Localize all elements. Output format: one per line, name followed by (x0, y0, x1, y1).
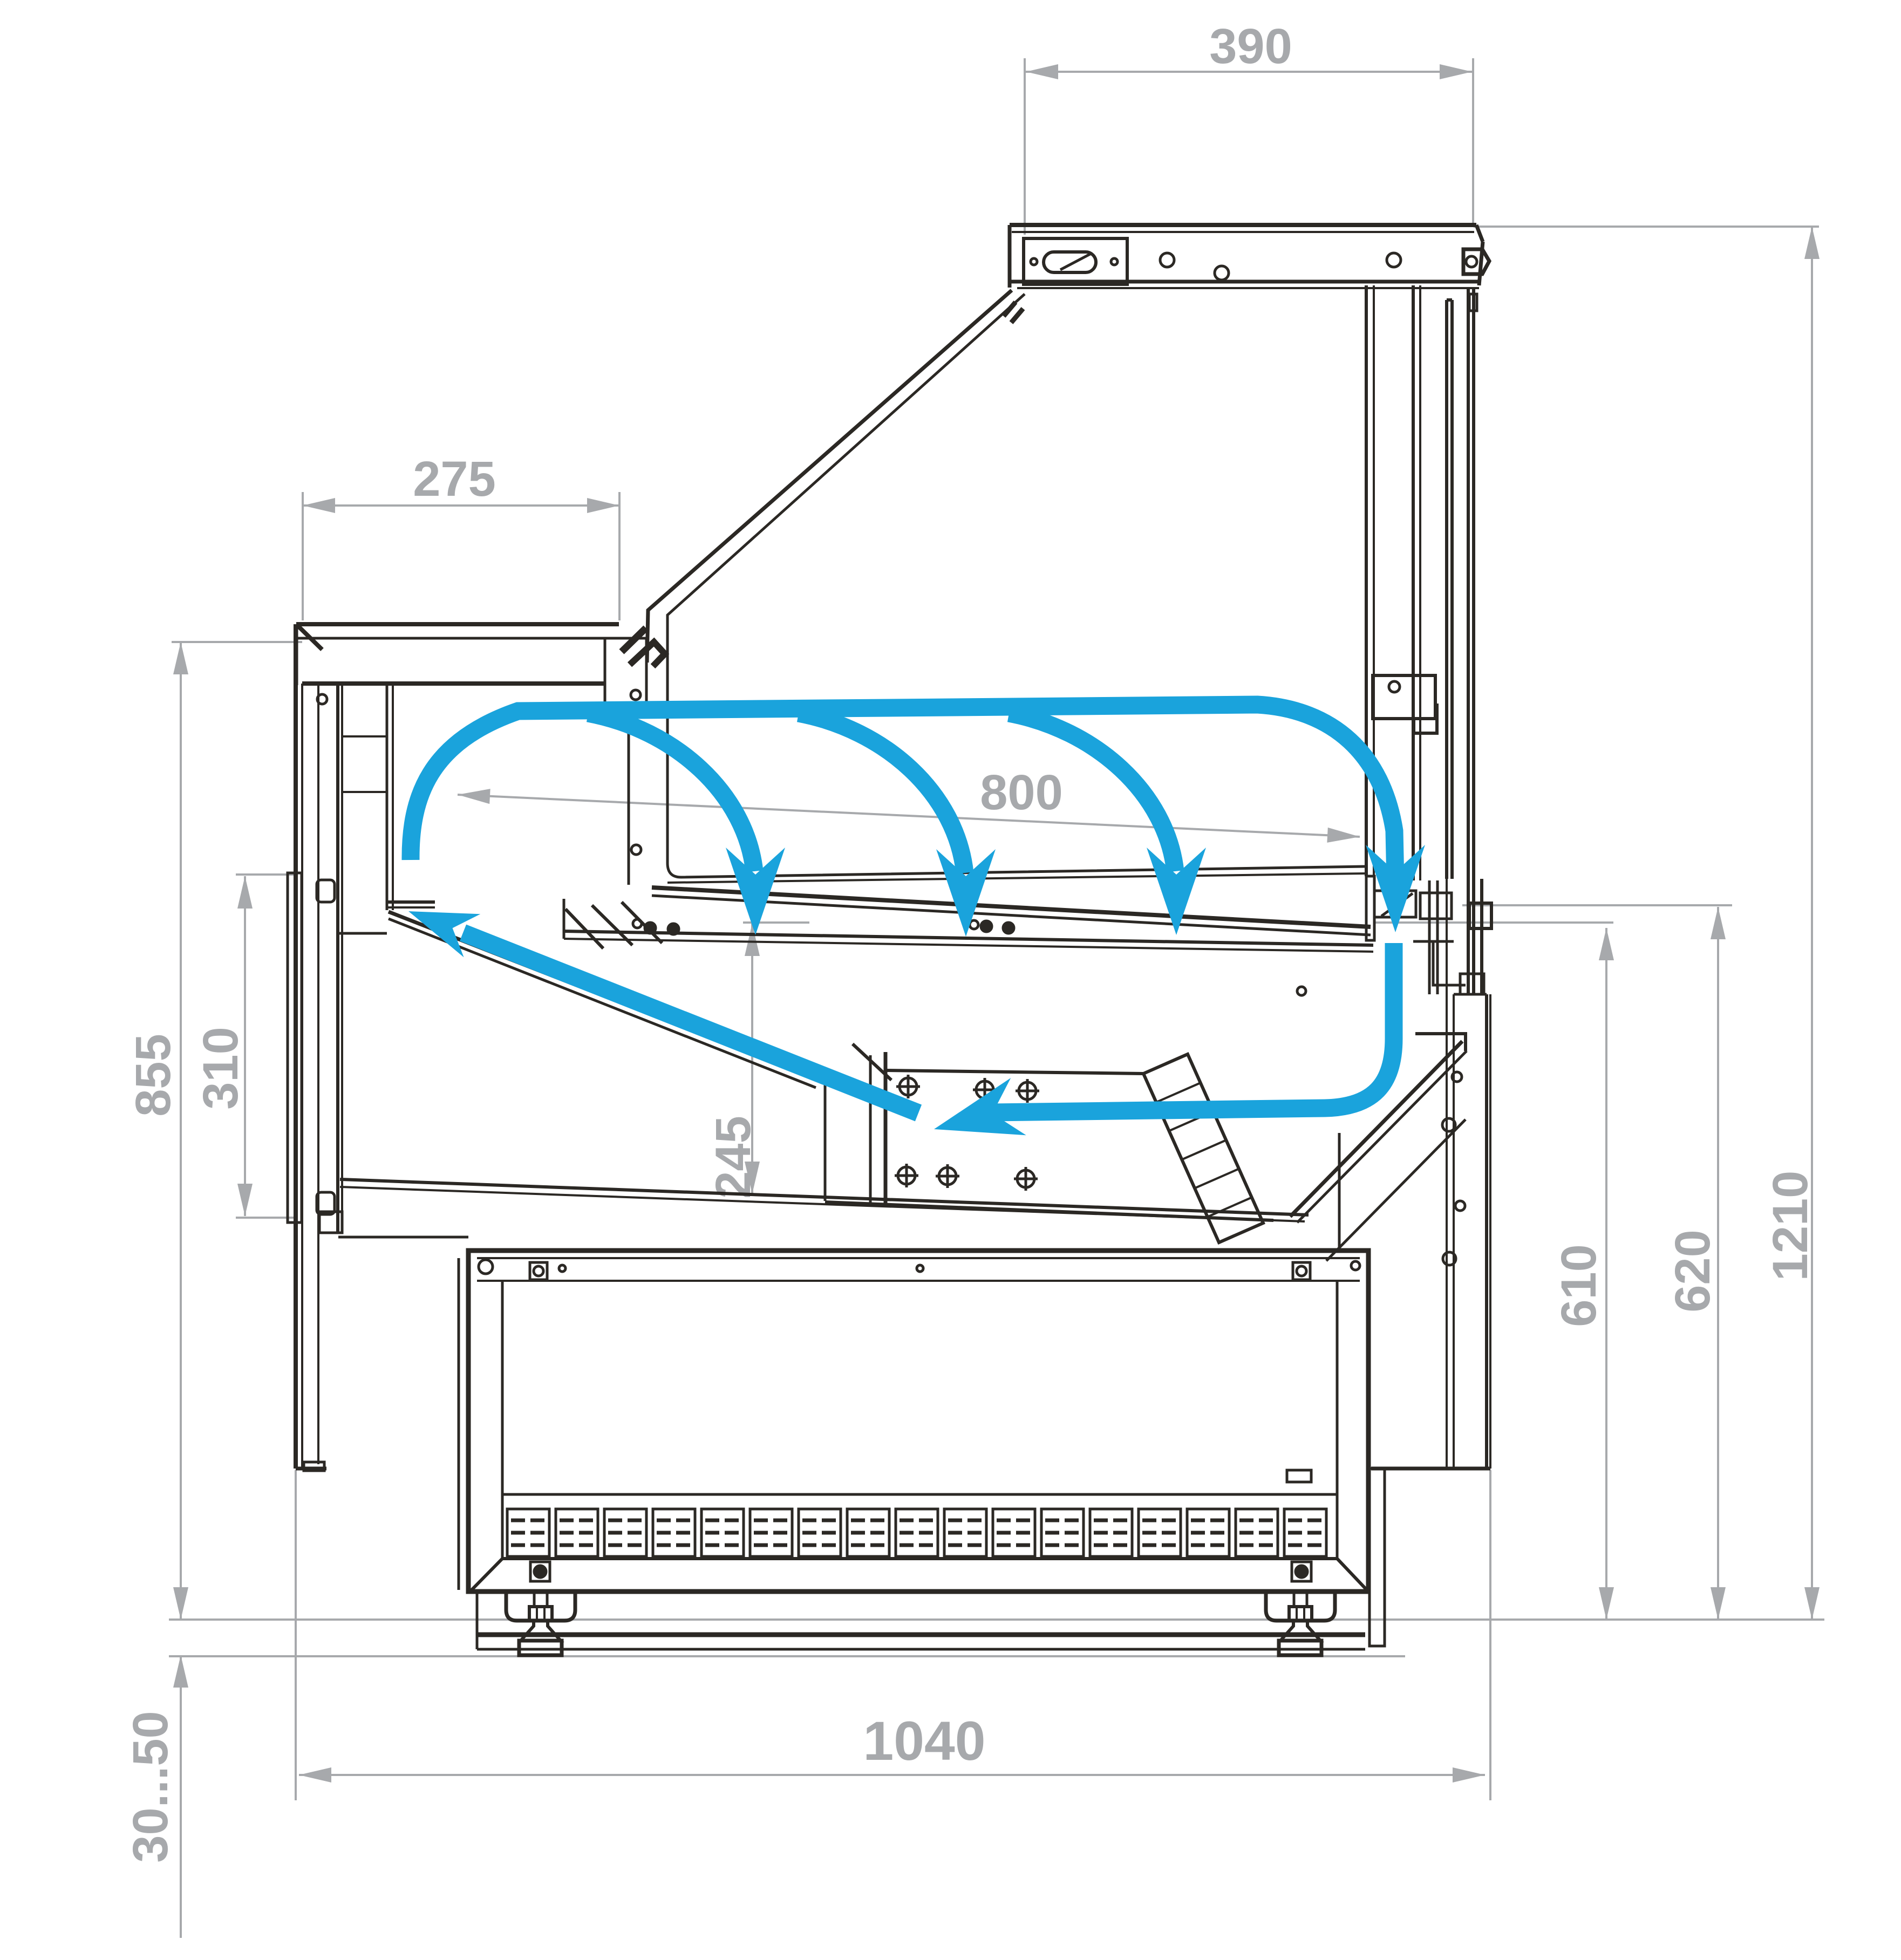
svg-text:855: 855 (126, 1034, 181, 1117)
svg-text:30...50: 30...50 (123, 1711, 178, 1862)
svg-text:275: 275 (413, 452, 496, 507)
svg-text:800: 800 (980, 765, 1063, 820)
svg-text:620: 620 (1665, 1230, 1720, 1313)
svg-text:1040: 1040 (863, 1710, 986, 1772)
svg-text:610: 610 (1551, 1244, 1606, 1327)
svg-text:1210: 1210 (1763, 1171, 1818, 1281)
svg-text:310: 310 (193, 1027, 248, 1110)
svg-text:390: 390 (1209, 19, 1292, 74)
